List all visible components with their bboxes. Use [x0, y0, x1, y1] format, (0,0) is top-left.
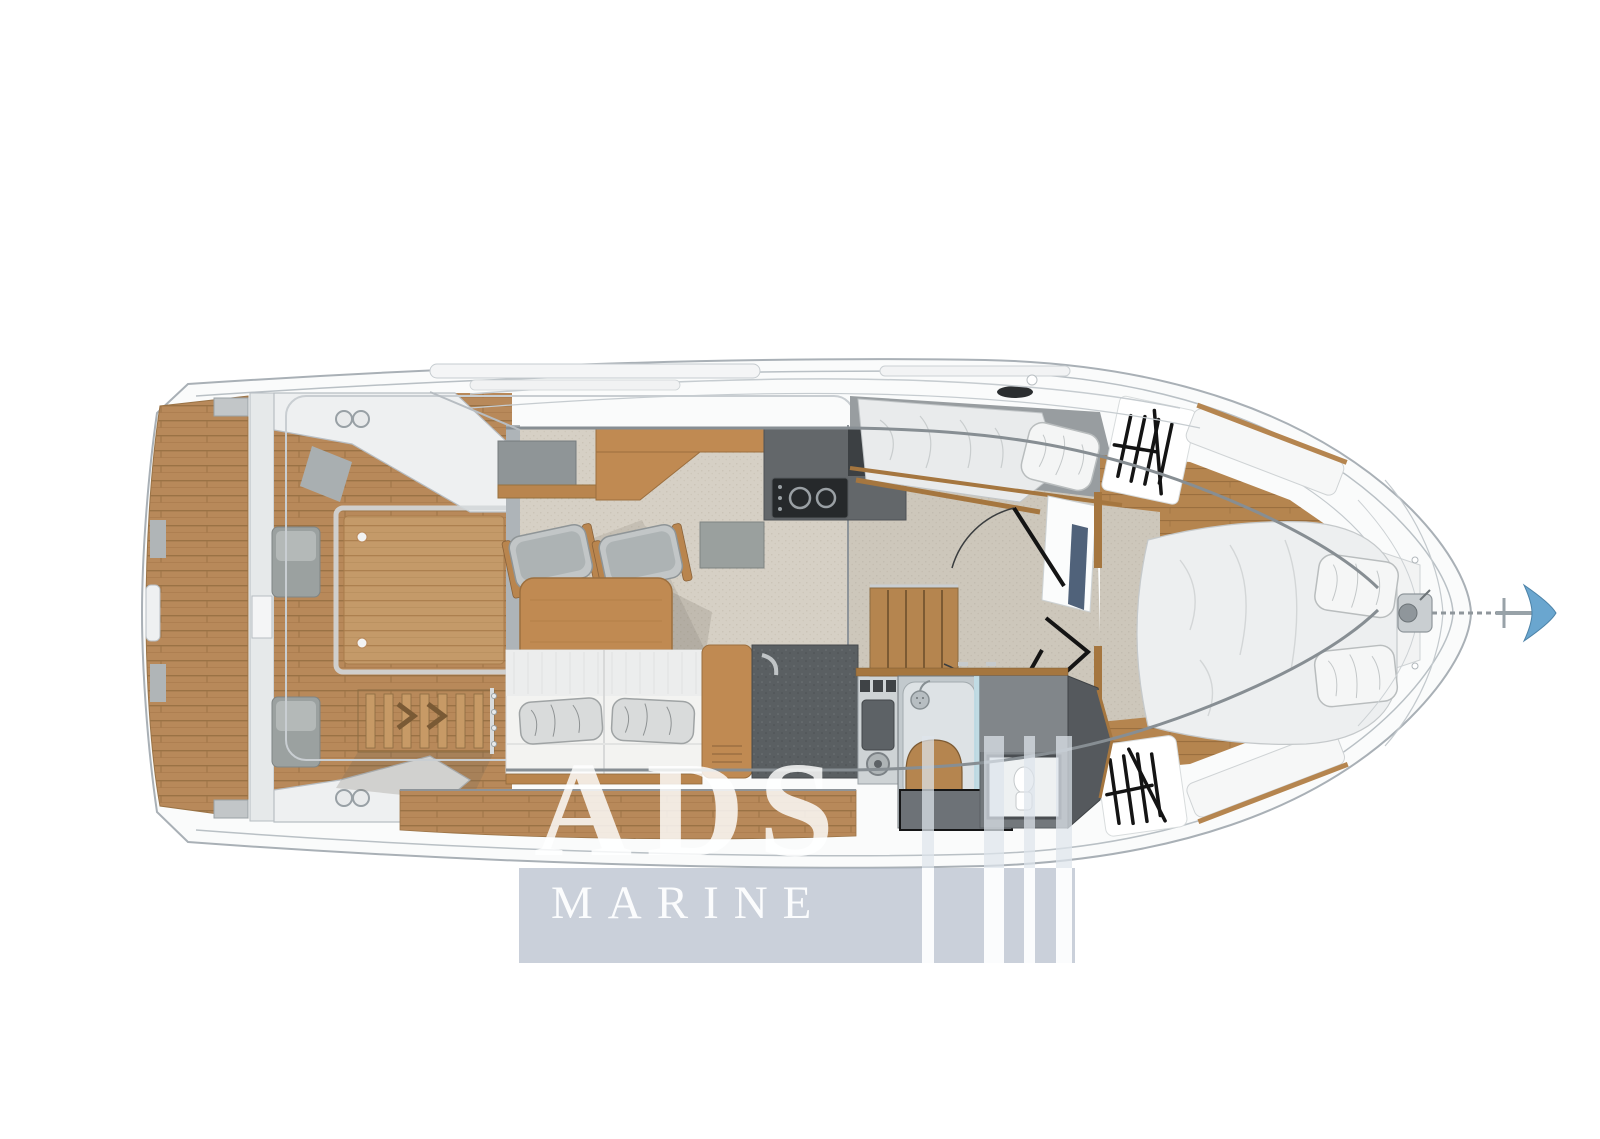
cockpit-sink-bowl	[353, 790, 369, 806]
owner-cabin-door-panel	[1042, 496, 1096, 612]
watermark-title: ADS	[534, 742, 864, 878]
cockpit-table	[336, 508, 512, 672]
fender-block	[150, 664, 166, 702]
cabin-wall-post	[1094, 492, 1102, 568]
watermark-bar	[1056, 736, 1072, 868]
galley-lower-cabinet	[700, 522, 764, 568]
stove	[772, 478, 848, 518]
watermark-bar	[922, 736, 934, 868]
watermark-bar	[1024, 736, 1035, 868]
watermark-bar	[922, 868, 934, 963]
watermark-bar	[1024, 868, 1035, 963]
deck-vent	[997, 386, 1033, 398]
anchor	[1496, 585, 1556, 641]
swim-ladder-recess	[146, 585, 160, 641]
flybridge-stairs	[358, 688, 497, 754]
jump-seat	[272, 527, 320, 597]
fender-block	[150, 520, 166, 558]
stern-cleat	[214, 398, 248, 416]
cockpit-sink-bowl	[353, 411, 369, 427]
swim-platform	[146, 396, 248, 818]
yacht-floorplan-page: ADS MARINE	[0, 0, 1600, 1139]
transom	[250, 393, 274, 821]
windlass	[1398, 590, 1432, 632]
companionway-steps	[870, 586, 958, 676]
cockpit-sink-bowl	[336, 790, 352, 806]
transom-gate	[252, 596, 272, 638]
watermark-bar	[984, 868, 1004, 963]
watermark-bar	[984, 736, 1004, 868]
boat-floorplan-drawing	[0, 0, 1600, 1139]
watermark-bar	[1056, 868, 1072, 963]
stern-cleat	[214, 800, 248, 818]
bathroom-fwd-wall	[856, 668, 1068, 676]
owner-berth	[1137, 522, 1400, 745]
owner-pillow	[1313, 553, 1400, 620]
cockpit-sink-bowl	[336, 411, 352, 427]
owner-pillow	[1313, 644, 1398, 708]
watermark-subtitle: MARINE	[551, 880, 826, 927]
